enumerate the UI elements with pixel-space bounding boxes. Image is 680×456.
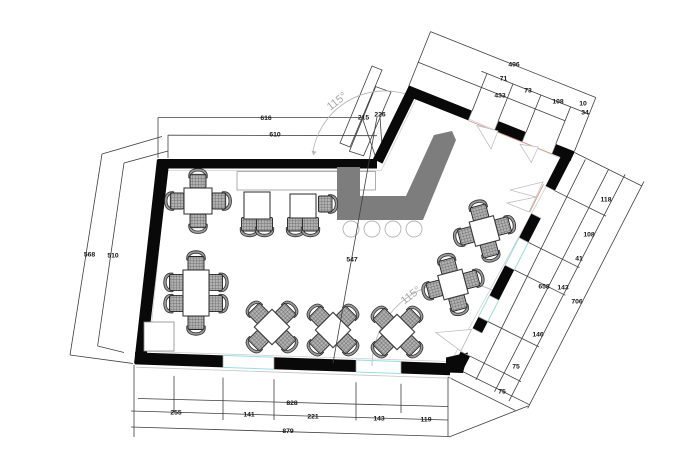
svg-text:658: 658 xyxy=(538,283,550,290)
svg-text:143: 143 xyxy=(373,415,385,422)
svg-text:119: 119 xyxy=(421,417,432,424)
svg-text:433: 433 xyxy=(494,92,506,99)
svg-text:10: 10 xyxy=(579,100,587,107)
svg-text:226: 226 xyxy=(374,111,386,118)
svg-text:610: 610 xyxy=(269,131,281,138)
svg-text:706: 706 xyxy=(571,298,583,305)
svg-text:108: 108 xyxy=(583,231,595,238)
svg-text:496: 496 xyxy=(508,61,520,68)
svg-text:143: 143 xyxy=(557,284,569,291)
svg-text:510: 510 xyxy=(107,252,119,259)
svg-text:75: 75 xyxy=(512,363,520,370)
svg-text:73: 73 xyxy=(524,87,532,94)
svg-text:141: 141 xyxy=(243,412,255,419)
svg-text:34: 34 xyxy=(581,109,589,116)
svg-text:146: 146 xyxy=(532,331,544,338)
svg-text:255: 255 xyxy=(170,410,182,417)
svg-text:616: 616 xyxy=(260,115,272,122)
svg-text:71: 71 xyxy=(500,75,508,82)
svg-text:75: 75 xyxy=(498,388,506,395)
svg-text:828: 828 xyxy=(286,400,298,407)
svg-text:879: 879 xyxy=(282,428,294,435)
svg-text:118: 118 xyxy=(601,196,612,203)
svg-text:547: 547 xyxy=(346,256,358,263)
svg-text:108: 108 xyxy=(552,98,564,105)
svg-text:568: 568 xyxy=(84,251,96,258)
svg-text:221: 221 xyxy=(307,414,319,421)
svg-text:215: 215 xyxy=(358,114,370,121)
svg-text:41: 41 xyxy=(575,255,583,262)
